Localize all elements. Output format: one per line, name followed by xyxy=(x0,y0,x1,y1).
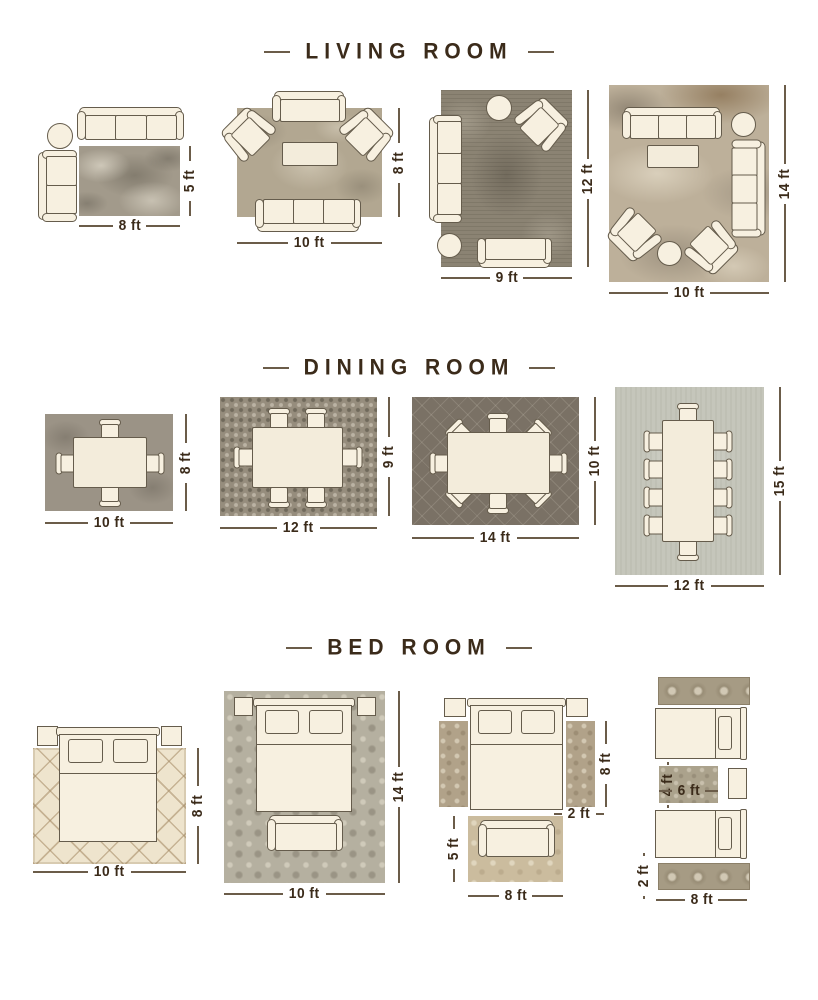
dimension-label: 6 ft xyxy=(677,783,700,799)
dimension-label: 8 ft xyxy=(690,892,713,908)
dining-chair xyxy=(487,493,509,514)
nightstand xyxy=(566,698,588,717)
title-dash xyxy=(528,51,554,54)
dimension-line xyxy=(784,204,786,283)
round-side-table xyxy=(731,112,756,137)
dimension-accent-width: 6 ft xyxy=(659,783,718,799)
dimension-label: 8 ft xyxy=(190,795,206,818)
dimension-height: 8 ft xyxy=(190,748,206,864)
oval-dining-table xyxy=(447,432,550,494)
foot-bench xyxy=(267,815,343,852)
dimension-line xyxy=(656,899,685,901)
dimension-height: 15 ft xyxy=(772,387,788,575)
section-title-text: DINING ROOM xyxy=(304,355,515,380)
dimension-line xyxy=(468,895,499,897)
dimension-line xyxy=(643,853,645,856)
dimension-line xyxy=(594,397,596,441)
dimension-line xyxy=(197,748,199,786)
dimension-line xyxy=(453,816,455,829)
dimension-line xyxy=(587,199,589,268)
dining-table xyxy=(252,427,343,488)
nightstand xyxy=(357,697,376,716)
title-dash xyxy=(264,51,290,54)
nightstand xyxy=(234,697,253,716)
dimension-label: 9 ft xyxy=(495,270,518,286)
nightstand xyxy=(444,698,466,717)
dimension-line xyxy=(643,896,645,899)
three-seat-sofa xyxy=(622,107,722,140)
dimension-line xyxy=(667,805,669,808)
bed xyxy=(470,698,563,810)
dimension-line xyxy=(667,762,669,765)
bench-loveseat xyxy=(477,237,552,268)
dimension-line xyxy=(398,183,400,218)
dimension-line xyxy=(784,85,786,164)
dimension-line xyxy=(615,585,668,587)
dimension-width: 12 ft xyxy=(220,520,377,536)
dimension-line xyxy=(594,481,596,525)
nightstand xyxy=(728,768,747,799)
dimension-label: 14 ft xyxy=(777,168,793,199)
twin-bed xyxy=(655,810,747,858)
dimension-line xyxy=(523,277,572,279)
section-title-dining-room: DINING ROOM xyxy=(0,356,818,380)
bed xyxy=(59,727,157,842)
loveseat xyxy=(38,150,78,222)
dimension-line xyxy=(79,225,113,227)
section-title-text: LIVING ROOM xyxy=(305,39,512,64)
dimension-line xyxy=(596,813,604,815)
dimension-line xyxy=(189,201,191,216)
dimension-line xyxy=(705,790,718,792)
dimension-height: 8 ft xyxy=(391,108,407,217)
title-dash xyxy=(506,647,532,650)
dimension-runner-length: 8 ft xyxy=(598,721,614,807)
dimension-height: 14 ft xyxy=(777,85,793,282)
dimension-label: 5 ft xyxy=(182,170,198,193)
title-dash xyxy=(529,367,555,370)
dimension-line xyxy=(609,292,668,294)
dining-table xyxy=(73,437,147,488)
dimension-height: 14 ft xyxy=(391,691,407,883)
nightstand xyxy=(161,726,182,746)
dimension-line xyxy=(224,893,283,895)
dimension-line xyxy=(185,414,187,443)
loveseat xyxy=(272,91,346,123)
dimension-width: 12 ft xyxy=(615,578,764,594)
dimension-label: 2 ft xyxy=(636,864,652,887)
round-ottoman xyxy=(437,233,462,258)
dimension-line xyxy=(441,277,490,279)
dimension-height: 12 ft xyxy=(580,90,596,267)
dining-chair xyxy=(712,487,733,509)
dimension-line xyxy=(659,790,672,792)
dimension-line xyxy=(220,527,277,529)
dimension-width: 10 ft xyxy=(237,235,382,251)
dimension-label: 8 ft xyxy=(178,451,194,474)
dimension-height: 5 ft xyxy=(182,146,198,216)
runner-rug xyxy=(439,721,468,807)
dining-chair xyxy=(487,413,509,434)
dimension-label: 8 ft xyxy=(118,218,141,234)
section-title-living-room: LIVING ROOM xyxy=(0,40,818,64)
dining-chair xyxy=(99,486,121,507)
round-side-table xyxy=(486,95,512,121)
oval-coffee-table xyxy=(282,142,338,166)
dining-table xyxy=(662,420,714,542)
dimension-line xyxy=(33,871,88,873)
oval-coffee-table xyxy=(647,145,699,168)
three-seat-sofa xyxy=(255,198,361,232)
dimension-height: 10 ft xyxy=(587,397,603,525)
dimension-runner-length: 8 ft xyxy=(656,892,747,908)
dimension-line xyxy=(718,899,747,901)
dimension-label: 9 ft xyxy=(381,445,397,468)
dimension-line xyxy=(398,108,400,143)
dimension-line xyxy=(554,813,562,815)
dining-chair xyxy=(268,408,290,429)
dining-chair xyxy=(305,487,327,508)
dimension-line xyxy=(779,387,781,461)
three-seat-sofa xyxy=(429,115,463,223)
dimension-width: 10 ft xyxy=(45,515,173,531)
dimension-line xyxy=(398,807,400,883)
dimension-label: 8 ft xyxy=(391,151,407,174)
dining-chair xyxy=(305,408,327,429)
nightstand xyxy=(37,726,58,746)
dimension-label: 12 ft xyxy=(580,163,596,194)
dimension-line xyxy=(326,893,385,895)
dimension-width: 10 ft xyxy=(33,864,186,880)
dimension-label: 8 ft xyxy=(504,888,527,904)
dimension-label: 8 ft xyxy=(598,753,614,776)
dining-chair xyxy=(342,447,363,469)
dimension-label: 5 ft xyxy=(446,838,462,861)
runner-rug xyxy=(658,863,750,890)
dimension-line xyxy=(237,242,288,244)
dimension-width: 10 ft xyxy=(609,285,769,301)
three-seat-sofa xyxy=(731,140,766,238)
round-ottoman xyxy=(657,241,682,266)
three-seat-sofa xyxy=(77,107,184,141)
dining-chair xyxy=(712,515,733,537)
section-title-bed-room: BED ROOM xyxy=(0,636,818,660)
dimension-width: 8 ft xyxy=(79,218,180,234)
dimension-height: 8 ft xyxy=(178,414,194,511)
dimension-label: 10 ft xyxy=(674,285,705,301)
dimension-line xyxy=(146,225,180,227)
dimension-line xyxy=(398,691,400,767)
runner-rug xyxy=(658,677,750,705)
dimension-line xyxy=(412,537,474,539)
dimension-height: 9 ft xyxy=(381,397,397,516)
section-title-text: BED ROOM xyxy=(327,635,491,660)
dimension-line xyxy=(711,585,764,587)
dimension-label: 10 ft xyxy=(94,515,125,531)
dimension-line xyxy=(130,522,173,524)
foot-bench xyxy=(478,820,555,858)
dimension-line xyxy=(189,146,191,161)
title-dash xyxy=(263,367,289,370)
runner-rug xyxy=(566,721,595,807)
dining-chair xyxy=(268,487,290,508)
dimension-label: 10 ft xyxy=(294,235,325,251)
dimension-line xyxy=(388,477,390,517)
round-side-table xyxy=(47,123,73,149)
dimension-label: 10 ft xyxy=(289,886,320,902)
dimension-line xyxy=(710,292,769,294)
dimension-line xyxy=(131,871,186,873)
dimension-line xyxy=(517,537,579,539)
dimension-width: 14 ft xyxy=(412,530,579,546)
dimension-label: 12 ft xyxy=(674,578,705,594)
dimension-label: 14 ft xyxy=(391,772,407,803)
dimension-line xyxy=(587,90,589,159)
dimension-line xyxy=(605,784,607,807)
area-rug xyxy=(79,146,180,216)
dining-chair xyxy=(712,459,733,481)
dimension-label: 14 ft xyxy=(480,530,511,546)
dimension-rug-height: 5 ft xyxy=(446,816,462,882)
dimension-runner-width: 2 ft xyxy=(636,859,652,892)
dimension-width: 10 ft xyxy=(224,886,385,902)
dimension-width: 9 ft xyxy=(441,270,572,286)
dimension-label: 10 ft xyxy=(94,864,125,880)
twin-bed xyxy=(655,708,747,759)
dimension-line xyxy=(45,522,88,524)
dimension-line xyxy=(779,501,781,575)
dimension-label: 15 ft xyxy=(772,466,788,497)
dimension-label: 12 ft xyxy=(283,520,314,536)
title-dash xyxy=(286,647,312,650)
dining-chair xyxy=(712,431,733,453)
dimension-line xyxy=(532,895,563,897)
rug-size-guide: LIVING ROOM 5 ft 8 ft xyxy=(0,0,818,1000)
dimension-line xyxy=(197,826,199,864)
dining-chair xyxy=(677,540,699,561)
dimension-line xyxy=(388,397,390,437)
dimension-label: 2 ft xyxy=(568,806,591,822)
bed xyxy=(256,698,352,812)
dimension-line xyxy=(320,527,377,529)
dimension-rug-width: 8 ft xyxy=(468,888,563,904)
dimension-line xyxy=(185,483,187,512)
dimension-label: 10 ft xyxy=(587,446,603,477)
dimension-line xyxy=(605,721,607,744)
dimension-line xyxy=(331,242,382,244)
dimension-line xyxy=(453,869,455,882)
